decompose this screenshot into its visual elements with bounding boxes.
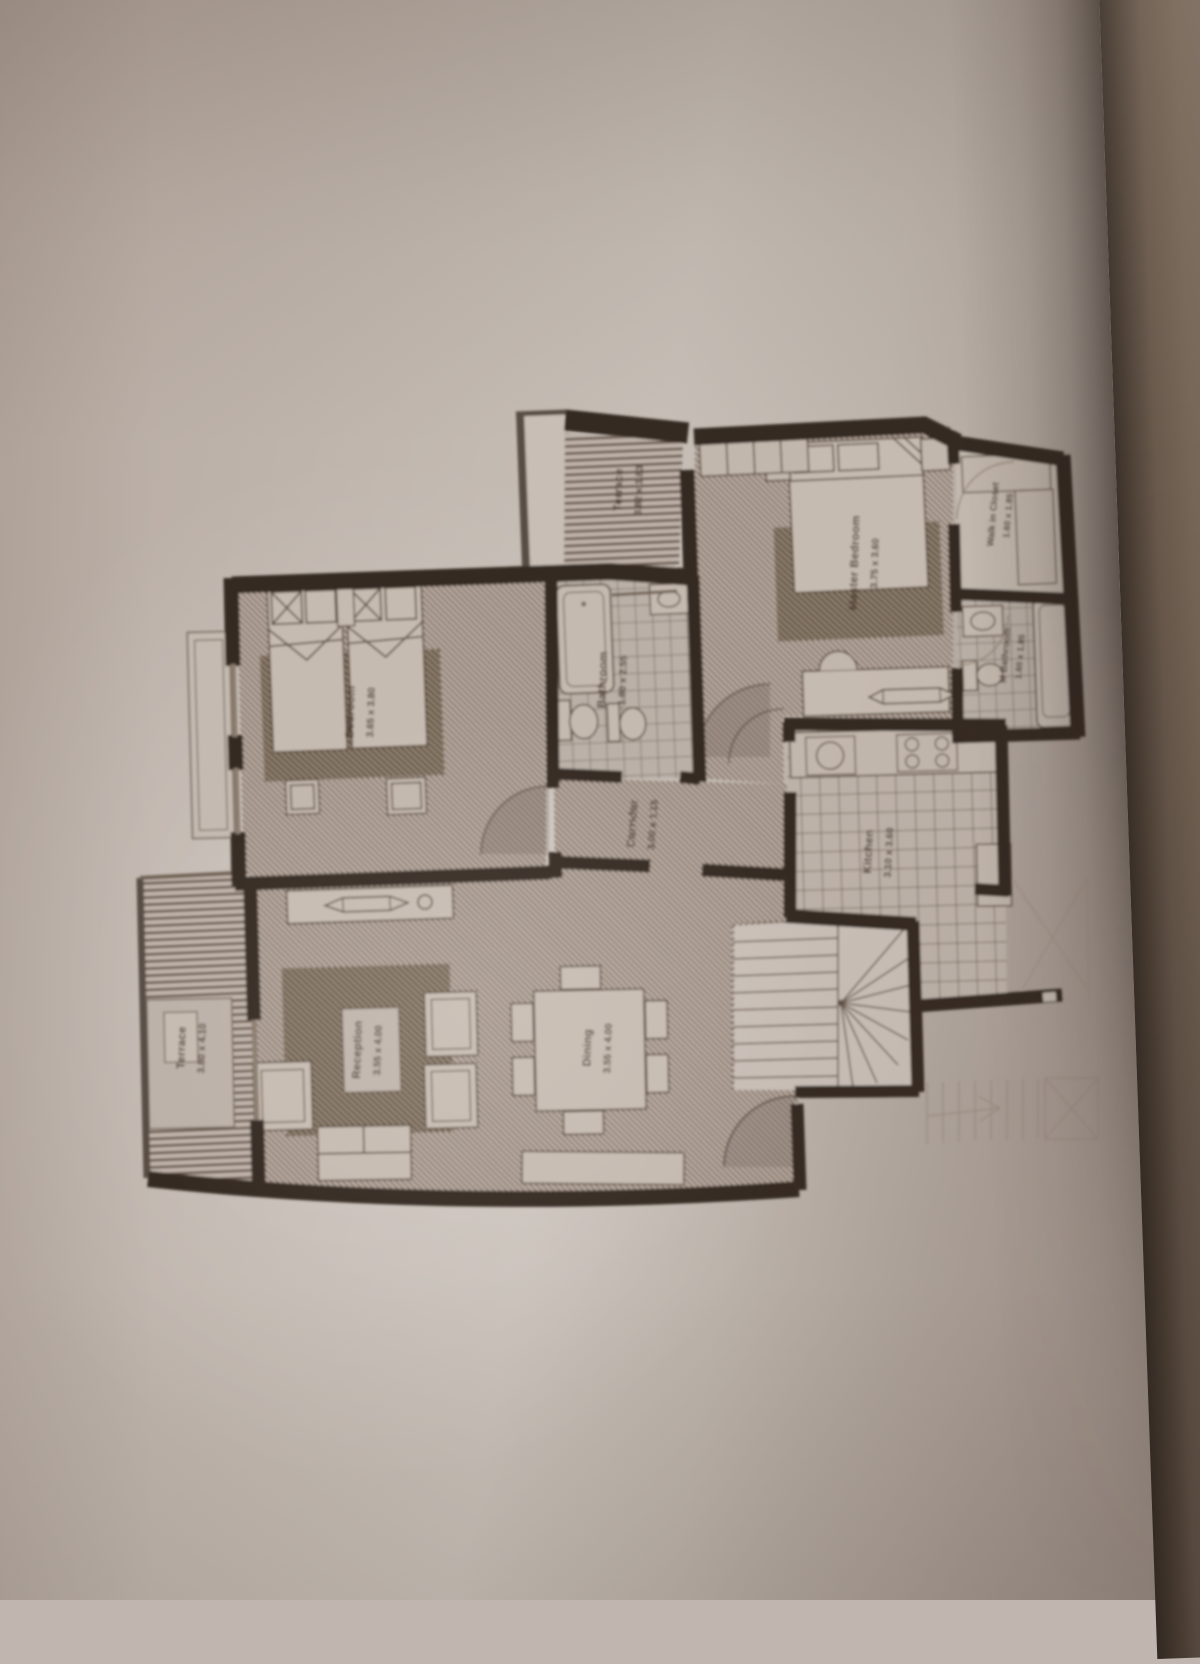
svg-text:Dining: Dining [581, 1029, 594, 1067]
svg-text:Bedroom: Bedroom [344, 685, 358, 738]
svg-text:Bathroom: Bathroom [596, 651, 610, 708]
svg-text:Terrace: Terrace [612, 468, 625, 511]
svg-text:3.80 x 4.10: 3.80 x 4.10 [196, 1023, 209, 1074]
svg-text:3.82 x 1.83: 3.82 x 1.83 [633, 465, 646, 516]
svg-text:3.55 x 4.00: 3.55 x 4.00 [602, 1023, 615, 1074]
svg-text:3.55 x 4.00: 3.55 x 4.00 [372, 1025, 385, 1076]
svg-text:Reception: Reception [351, 1020, 365, 1079]
svg-text:Terrace: Terrace [175, 1026, 188, 1069]
svg-text:Kitchen: Kitchen [862, 829, 876, 874]
svg-text:3.65 x 3.80: 3.65 x 3.80 [365, 687, 378, 738]
svg-text:1.80 x 2.55: 1.80 x 2.55 [617, 655, 630, 706]
svg-text:3.75 x 3.60: 3.75 x 3.60 [869, 538, 882, 589]
